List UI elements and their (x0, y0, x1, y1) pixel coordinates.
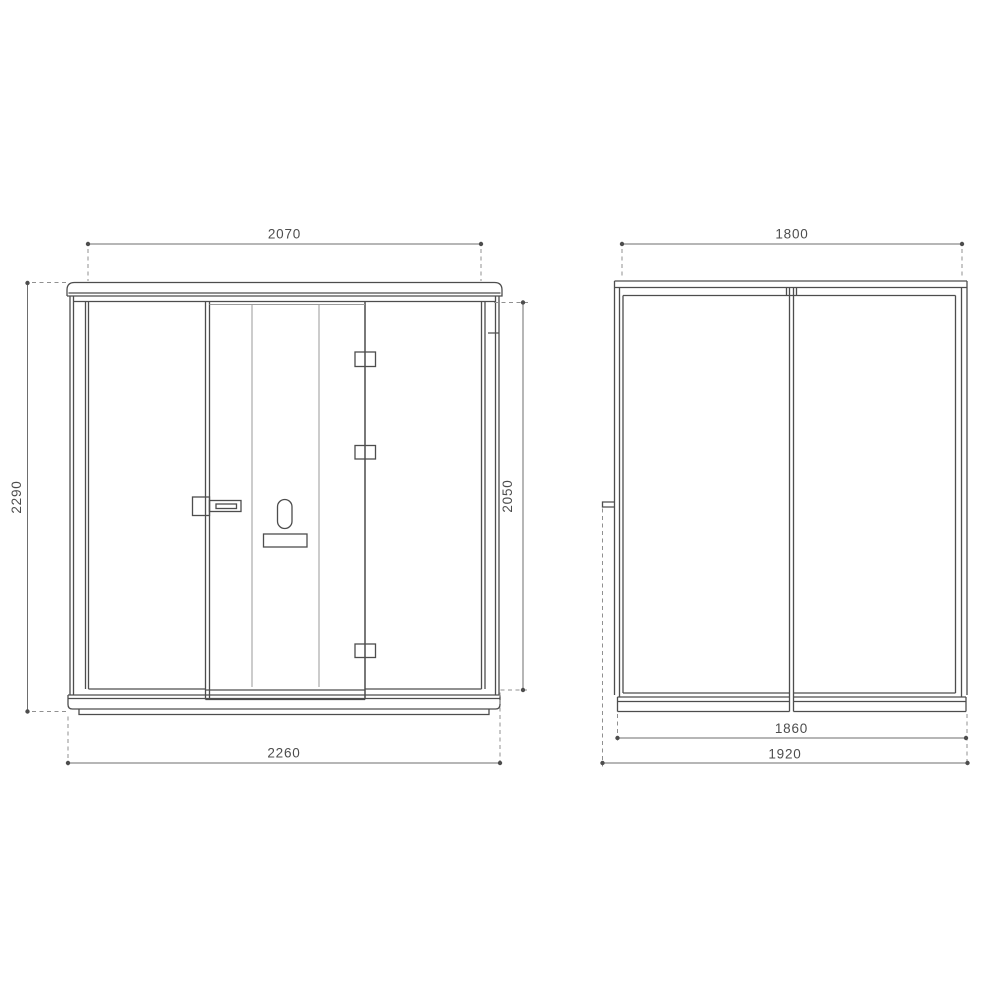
dim-label-front-left-height: 2290 (9, 480, 24, 513)
extension-lines (32, 283, 66, 712)
dim-endpoint (964, 736, 968, 740)
dim-front-top-width: 2070 (86, 227, 483, 282)
door (193, 302, 376, 700)
dim-label-front-right-height: 2050 (500, 479, 515, 512)
dim-endpoint (600, 761, 604, 765)
dim-endpoint (25, 709, 29, 713)
base-band (68, 695, 500, 709)
side-frame-lines (615, 281, 968, 712)
dim-endpoint (479, 242, 483, 246)
dim-endpoint (620, 242, 624, 246)
dim-endpoint (615, 736, 619, 740)
dim-label-side-outer-depth: 1920 (768, 747, 801, 762)
technical-drawing: 2070 2290 2050 2260 (0, 0, 1000, 1000)
door-handle-inner (216, 504, 237, 509)
dim-endpoint (498, 761, 502, 765)
dim-endpoint (25, 281, 29, 285)
front-base (68, 695, 500, 715)
side-base (618, 693, 967, 712)
extension-lines (88, 249, 481, 281)
dim-endpoint (521, 688, 525, 692)
door-glass-lines (210, 304, 366, 687)
door-plate (264, 534, 308, 547)
front-frame-lines (70, 296, 499, 695)
dim-label-front-bottom-width: 2260 (267, 746, 300, 761)
door-lock-body (193, 497, 210, 516)
dim-endpoint (960, 242, 964, 246)
roof-cap (67, 283, 502, 297)
extension-lines (622, 249, 962, 278)
front-view: 2070 2290 2050 2260 (9, 227, 529, 768)
dim-endpoint (521, 300, 525, 304)
base-skid-lines (618, 693, 967, 712)
side-body-frame (603, 281, 968, 712)
dim-side-top-depth: 1800 (620, 227, 964, 279)
dim-endpoint (66, 761, 70, 765)
drawing-canvas: 2070 2290 2050 2260 (0, 0, 1000, 1000)
dim-label-front-top-width: 2070 (268, 227, 301, 242)
side-handle-profile (603, 502, 615, 507)
dim-front-bottom-width: 2260 (66, 693, 502, 768)
front-body-frame (70, 296, 499, 695)
dim-front-left-height: 2290 (9, 281, 66, 714)
dim-endpoint (965, 761, 969, 765)
door-pull-oval (278, 500, 293, 529)
base-plinth (79, 709, 489, 715)
dim-label-side-top-depth: 1800 (775, 227, 808, 242)
dim-endpoint (86, 242, 90, 246)
roof-cap-outline (67, 283, 502, 297)
dim-label-side-inner-depth: 1860 (775, 721, 808, 736)
side-view: 1800 1860 1920 (600, 227, 969, 767)
